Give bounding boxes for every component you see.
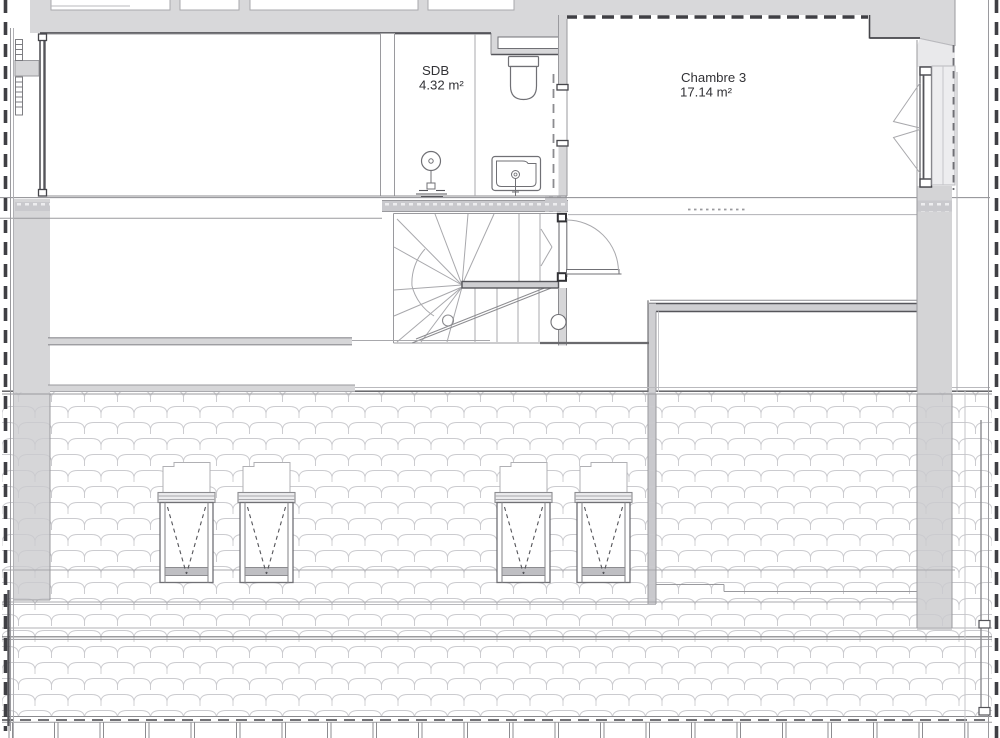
svg-text:Chambre 3: Chambre 3 bbox=[681, 70, 746, 85]
svg-text:4.32 m²: 4.32 m² bbox=[419, 78, 464, 93]
svg-text:17.14 m²: 17.14 m² bbox=[680, 85, 733, 100]
svg-text:SDB: SDB bbox=[422, 63, 449, 78]
